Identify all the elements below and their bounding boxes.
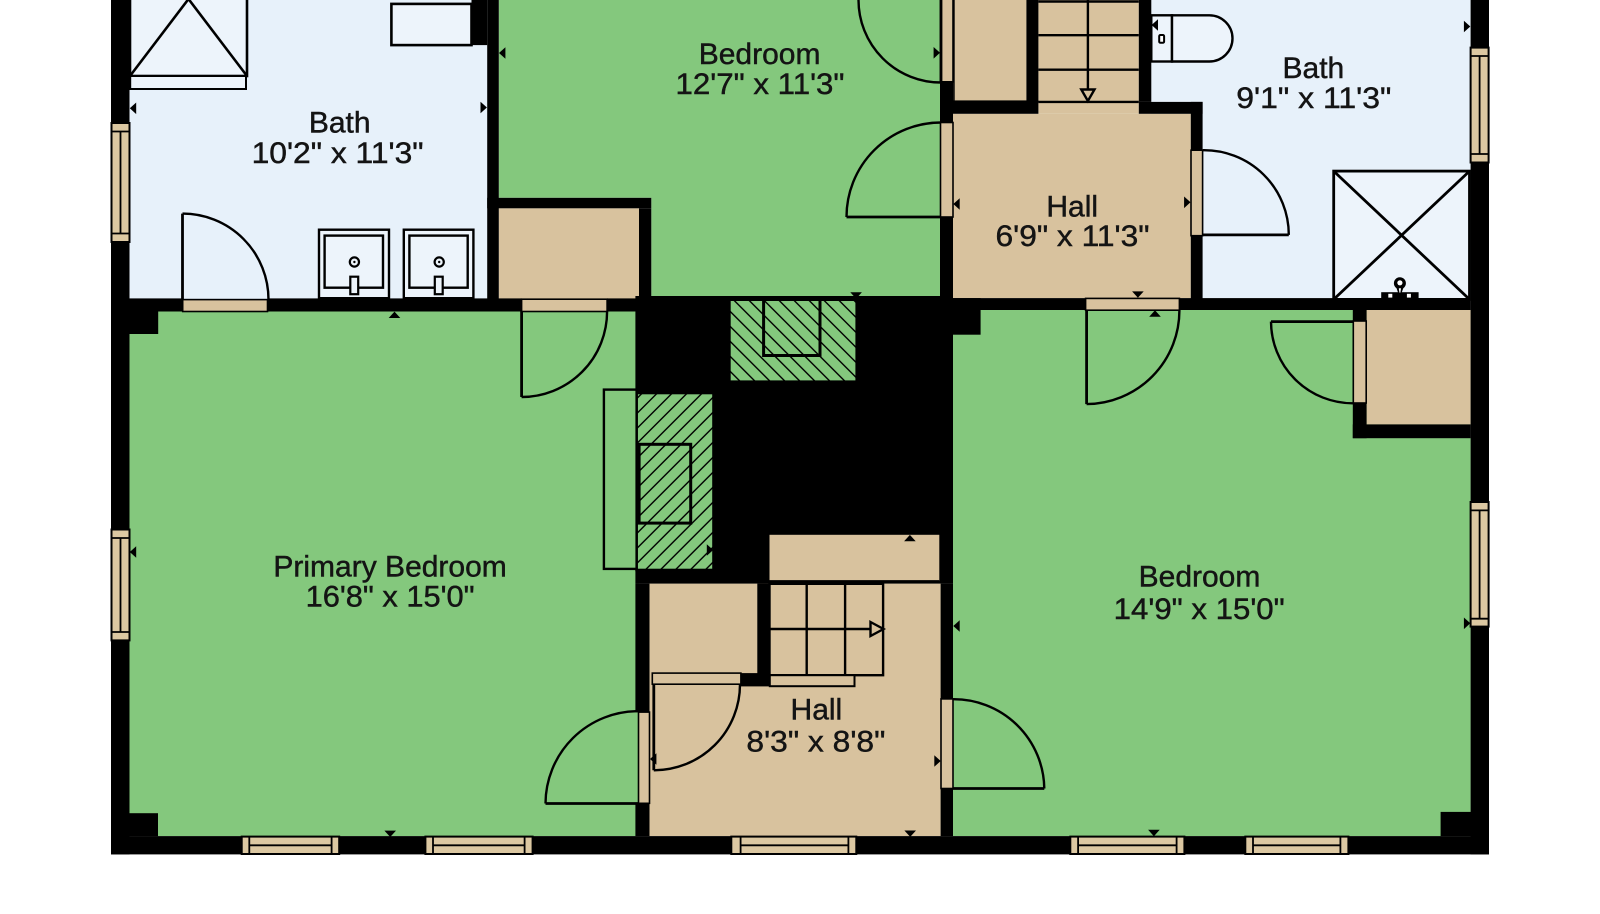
svg-text:8'3" x 8'8": 8'3" x 8'8" — [746, 725, 885, 758]
svg-text:Bedroom: Bedroom — [1139, 561, 1261, 594]
svg-text:Hall: Hall — [791, 693, 843, 726]
svg-text:Primary Bedroom: Primary Bedroom — [273, 551, 506, 584]
svg-text:Bedroom: Bedroom — [699, 38, 821, 71]
svg-text:Bath: Bath — [1283, 52, 1345, 85]
svg-text:9'1" x 11'3": 9'1" x 11'3" — [1236, 82, 1391, 115]
svg-text:Hall: Hall — [1046, 191, 1098, 224]
svg-text:12'7" x 11'3": 12'7" x 11'3" — [676, 68, 845, 101]
svg-text:14'9" x 15'0": 14'9" x 15'0" — [1114, 593, 1285, 626]
svg-text:10'2" x 11'3": 10'2" x 11'3" — [252, 137, 424, 170]
svg-text:6'9" x 11'3": 6'9" x 11'3" — [996, 220, 1150, 253]
svg-text:Bath: Bath — [309, 106, 371, 139]
svg-text:16'8" x 15'0": 16'8" x 15'0" — [306, 581, 475, 614]
